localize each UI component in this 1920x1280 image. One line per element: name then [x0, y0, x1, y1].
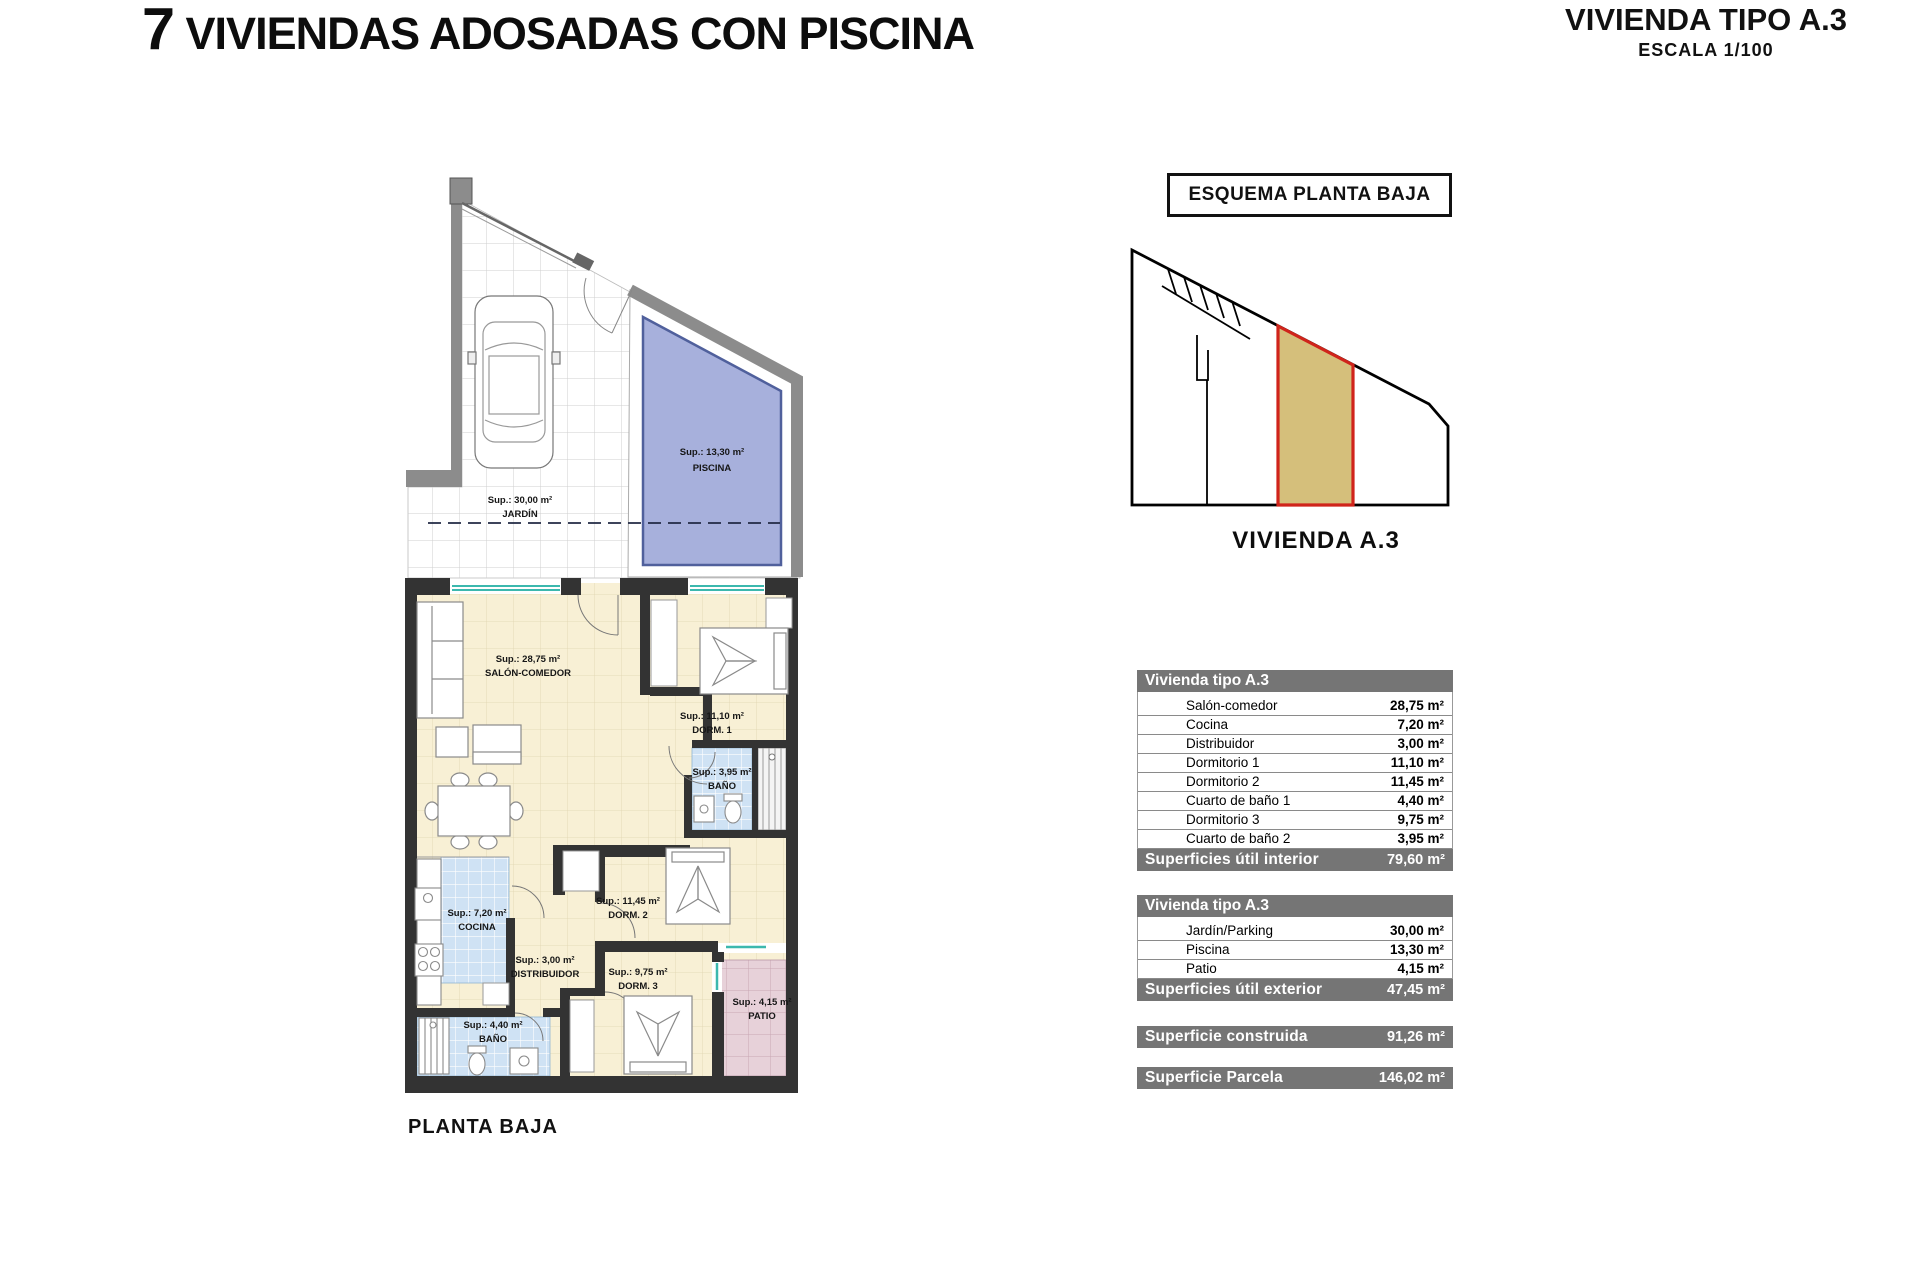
jardin-sup-label: Sup.: 30,00 m²: [488, 495, 552, 506]
exterior-areas-table: Vivienda tipo A.3 Jardín/Parking30,00 m²…: [1137, 895, 1453, 1001]
table-row: Distribuidor3,00 m²: [1138, 735, 1452, 754]
table-row: Cuarto de baño 14,40 m²: [1138, 792, 1452, 811]
table-row: Salón-comedor28,75 m²: [1138, 697, 1452, 716]
schema-title-box: ESQUEMA PLANTA BAJA: [1167, 173, 1452, 217]
bano1-name-label: BAÑO: [708, 781, 736, 792]
table-row: Cuarto de baño 23,95 m²: [1138, 830, 1452, 849]
cocina-name-label: COCINA: [458, 922, 496, 933]
interior-table-header: Vivienda tipo A.3: [1137, 670, 1453, 692]
dorm1-name-label: DORM. 1: [692, 725, 732, 736]
bed-dorm3: [624, 996, 692, 1074]
dorm2-name-label: DORM. 2: [608, 910, 648, 921]
bed-dorm2: [666, 848, 730, 924]
page: 7 VIVIENDAS ADOSADAS CON PISCINA VIVIEND…: [0, 0, 1920, 1280]
schema-parcel-label: VIVIENDA A.3: [1232, 527, 1400, 554]
cocina-sup-label: Sup.: 7,20 m²: [447, 908, 506, 919]
built-area-bar: Superficie construida 91,26 m²: [1137, 1026, 1453, 1048]
dorm1-sup-label: Sup.: 11,10 m²: [680, 711, 744, 722]
dorm3-name-label: DORM. 3: [618, 981, 658, 992]
louver-strip: [758, 748, 786, 830]
table-row: Dormitorio 211,45 m²: [1138, 773, 1452, 792]
car: [468, 296, 560, 468]
patio-sup-label: Sup.: 4,15 m²: [732, 997, 791, 1008]
interior-total-bar: Superficies útil interior 79,60 m²: [1137, 849, 1453, 871]
bano2-sup-label: Sup.: 4,40 m²: [463, 1020, 522, 1031]
piscina-sup-label: Sup.: 13,30 m²: [680, 447, 744, 458]
table-row: Cocina7,20 m²: [1138, 716, 1452, 735]
table-row: Piscina13,30 m²: [1138, 941, 1452, 960]
bano2-name-label: BAÑO: [479, 1034, 507, 1045]
kitchen-fixtures: [415, 859, 443, 1005]
piscina-name-label: PISCINA: [693, 463, 732, 474]
table-row: Jardín/Parking30,00 m²: [1138, 922, 1452, 941]
table-row: Dormitorio 111,10 m²: [1138, 754, 1452, 773]
built-area-bar-wrap: Superficie construida 91,26 m²: [1137, 1026, 1453, 1048]
schema-title: ESQUEMA PLANTA BAJA: [1188, 184, 1430, 206]
dorm2-sup-label: Sup.: 11,45 m²: [596, 896, 660, 907]
exterior-table-header: Vivienda tipo A.3: [1137, 895, 1453, 917]
distribuidor-sup-label: Sup.: 3,00 m²: [515, 955, 574, 966]
dorm3-sup-label: Sup.: 9,75 m²: [608, 967, 667, 978]
site-schema: VIVIENDA A.3: [1090, 220, 1490, 580]
kitchen-tiles: [441, 857, 509, 983]
table-row: Patio4,15 m²: [1138, 960, 1452, 979]
sheet-type-title: VIVIENDA TIPO A.3: [1500, 2, 1912, 38]
parcel-a3-highlight: [1278, 326, 1353, 505]
page-title: 7 VIVIENDAS ADOSADAS CON PISCINA: [142, 0, 974, 63]
exterior-total-bar: Superficies útil exterior 47,45 m²: [1137, 979, 1453, 1001]
sofa: [417, 602, 463, 718]
patio-name-label: PATIO: [748, 1011, 776, 1022]
salon-sup-label: Sup.: 28,75 m²: [496, 654, 560, 665]
sheet-header: VIVIENDA TIPO A.3 ESCALA 1/100: [1500, 2, 1912, 61]
bano1-sup-label: Sup.: 3,95 m²: [692, 767, 751, 778]
plan-caption: PLANTA BAJA: [408, 1116, 558, 1139]
bed-dorm1: [700, 628, 788, 694]
plot-area-bar: Superficie Parcela 146,02 m²: [1137, 1067, 1453, 1089]
jardin-name-label: JARDÍN: [502, 509, 538, 520]
distribuidor-name-label: DISTRIBUIDOR: [511, 969, 580, 980]
salon-name-label: SALÓN-COMEDOR: [485, 667, 571, 679]
sheet-scale: ESCALA 1/100: [1500, 40, 1912, 61]
plot-area-bar-wrap: Superficie Parcela 146,02 m²: [1137, 1067, 1453, 1089]
interior-areas-table: Vivienda tipo A.3 Salón-comedor28,75 m² …: [1137, 670, 1453, 871]
floor-plan: Sup.: 30,00 m² JARDÍN Sup.: 13,30 m² PIS…: [330, 140, 870, 1100]
pool: [628, 290, 797, 577]
table-row: Dormitorio 39,75 m²: [1138, 811, 1452, 830]
